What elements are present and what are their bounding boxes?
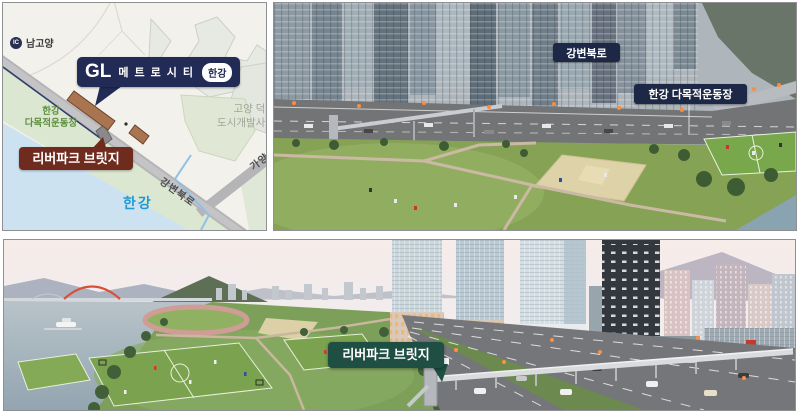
bridge-render-drawing <box>4 240 795 410</box>
interchange-icon: IC <box>10 37 22 49</box>
promo-composite: IC 남고양 GL 메트로시티 한강 한강 다목적운동장 리버파크 브릿지 한강… <box>0 0 800 413</box>
interchange-marker: IC 남고양 <box>10 35 54 50</box>
aerial-photo-panel: 강변북로 한강 다목적운동장 <box>273 2 797 231</box>
render-bridge-tag: 리버파크 브릿지 <box>328 342 444 368</box>
site-callout: GL 메트로시티 한강 <box>77 57 240 87</box>
aerial-road-tag: 강변북로 <box>553 43 620 62</box>
interchange-label: 남고양 <box>26 35 54 50</box>
sports-field-line1: 한강 <box>9 106 93 118</box>
development-label: 고양 덕은 도시개발사업 <box>189 102 267 130</box>
site-logo: GL <box>85 61 111 83</box>
sports-field-line2: 다목적운동장 <box>9 118 93 130</box>
development-line1: 고양 덕은 <box>189 102 267 116</box>
development-line2: 도시개발사업 <box>189 116 267 130</box>
river-label: 한강 <box>123 193 153 213</box>
aerial-field-tag: 한강 다목적운동장 <box>634 84 747 104</box>
location-map-panel: IC 남고양 GL 메트로시티 한강 한강 다목적운동장 리버파크 브릿지 한강… <box>2 2 267 231</box>
site-badge: 한강 <box>202 63 232 82</box>
site-name: 메트로시티 <box>118 64 199 80</box>
bridge-render-panel: 리버파크 브릿지 <box>3 239 796 411</box>
bridge-callout: 리버파크 브릿지 <box>19 147 133 170</box>
aerial-photo-drawing <box>274 3 796 230</box>
sports-field-label: 한강 다목적운동장 <box>9 106 93 129</box>
